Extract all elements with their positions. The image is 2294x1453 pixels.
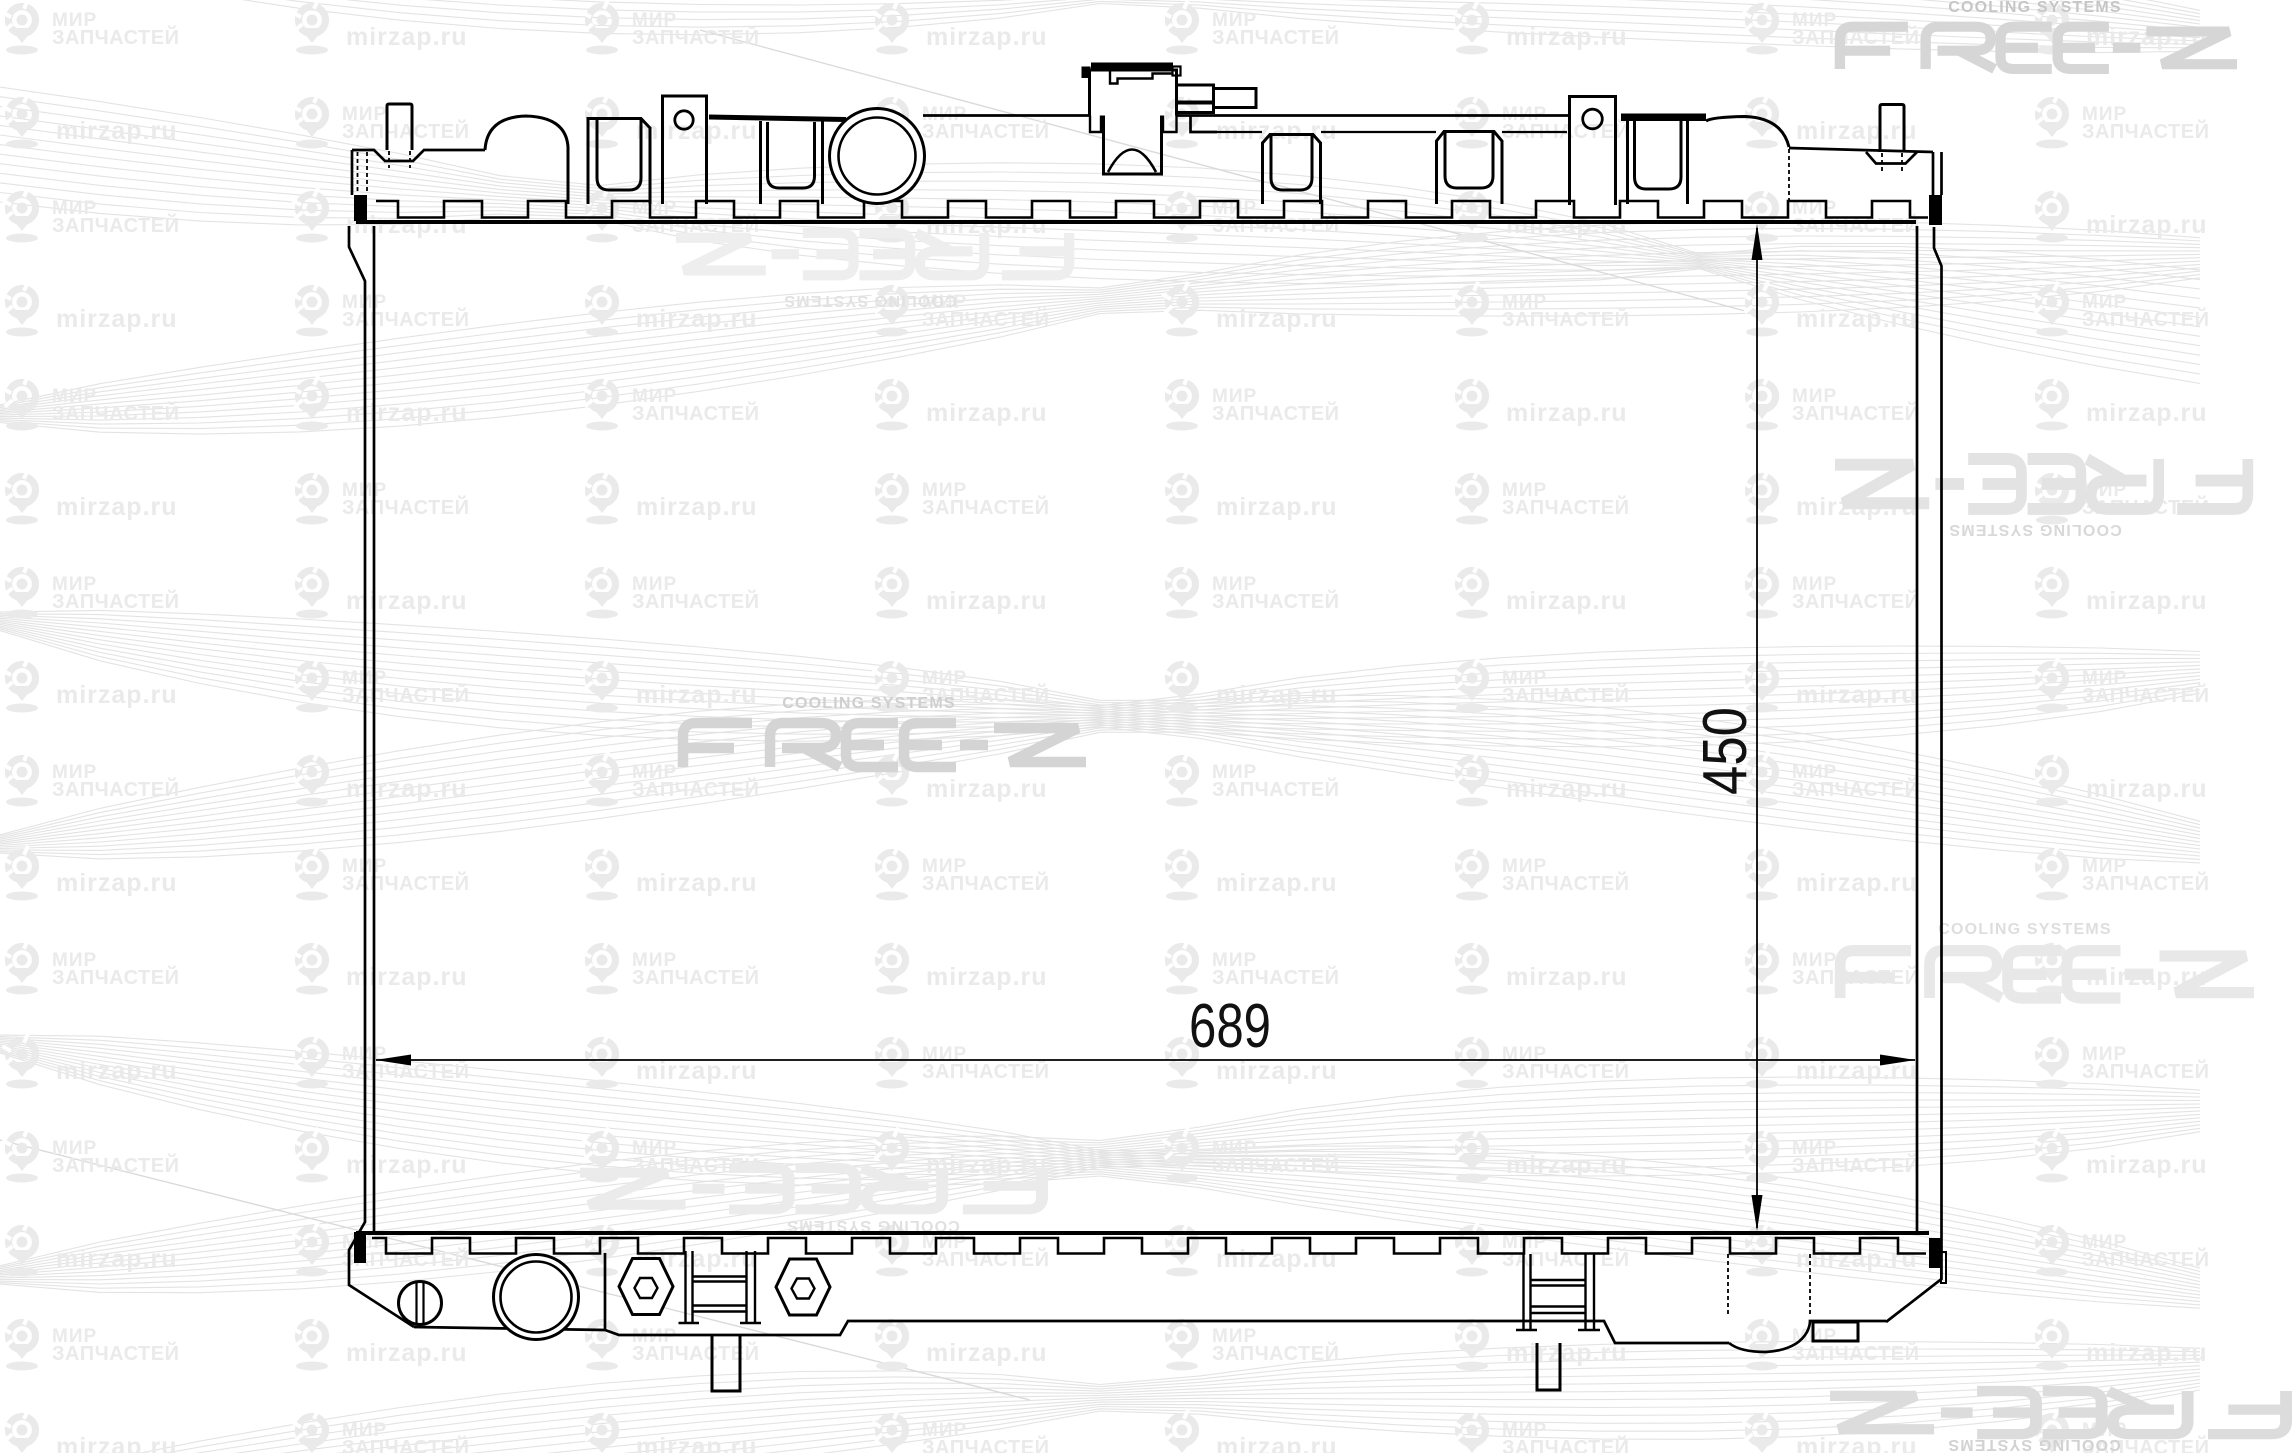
svg-text:450: 450 (1691, 707, 1760, 795)
svg-text:mirzap.ru: mirzap.ru (1506, 1339, 1628, 1367)
svg-text:ЗАПЧАСТЕЙ: ЗАПЧАСТЕЙ (52, 401, 179, 425)
svg-text:ЗАПЧАСТЕЙ: ЗАПЧАСТЕЙ (1212, 1153, 1339, 1177)
svg-text:ЗАПЧАСТЕЙ: ЗАПЧАСТЕЙ (342, 495, 469, 519)
svg-text:ЗАПЧАСТЕЙ: ЗАПЧАСТЕЙ (342, 871, 469, 895)
svg-text:mirzap.ru: mirzap.ru (926, 775, 1048, 803)
svg-text:ЗАПЧАСТЕЙ: ЗАПЧАСТЕЙ (52, 589, 179, 613)
svg-text:ЗАПЧАСТЕЙ: ЗАПЧАСТЕЙ (1502, 683, 1629, 707)
svg-text:mirzap.ru: mirzap.ru (56, 1245, 178, 1273)
svg-text:ЗАПЧАСТЕЙ: ЗАПЧАСТЕЙ (632, 401, 759, 425)
svg-text:ЗАПЧАСТЕЙ: ЗАПЧАСТЕЙ (342, 307, 469, 331)
svg-text:mirzap.ru: mirzap.ru (2086, 211, 2208, 239)
svg-text:mirzap.ru: mirzap.ru (636, 305, 758, 333)
svg-text:ЗАПЧАСТЕЙ: ЗАПЧАСТЕЙ (52, 965, 179, 989)
svg-text:mirzap.ru: mirzap.ru (926, 399, 1048, 427)
svg-text:ЗАПЧАСТЕЙ: ЗАПЧАСТЕЙ (2082, 1247, 2209, 1271)
svg-text:ЗАПЧАСТЕЙ: ЗАПЧАСТЕЙ (52, 25, 179, 49)
svg-text:mirzap.ru: mirzap.ru (926, 23, 1048, 51)
svg-text:mirzap.ru: mirzap.ru (1796, 117, 1918, 145)
svg-text:mirzap.ru: mirzap.ru (636, 681, 758, 709)
svg-text:mirzap.ru: mirzap.ru (56, 1433, 178, 1453)
svg-text:ЗАПЧАСТЕЙ: ЗАПЧАСТЕЙ (922, 1247, 1049, 1271)
svg-text:ЗАПЧАСТЕЙ: ЗАПЧАСТЕЙ (632, 777, 759, 801)
svg-text:ЗАПЧАСТЕЙ: ЗАПЧАСТЕЙ (922, 119, 1049, 143)
svg-text:mirzap.ru: mirzap.ru (2086, 1339, 2208, 1367)
svg-text:ЗАПЧАСТЕЙ: ЗАПЧАСТЕЙ (922, 307, 1049, 331)
svg-text:mirzap.ru: mirzap.ru (1796, 1433, 1918, 1453)
svg-text:ЗАПЧАСТЕЙ: ЗАПЧАСТЕЙ (632, 589, 759, 613)
svg-text:ЗАПЧАСТЕЙ: ЗАПЧАСТЕЙ (1502, 495, 1629, 519)
svg-text:ЗАПЧАСТЕЙ: ЗАПЧАСТЕЙ (1792, 1341, 1919, 1365)
svg-text:mirzap.ru: mirzap.ru (1506, 1151, 1628, 1179)
svg-text:ЗАПЧАСТЕЙ: ЗАПЧАСТЕЙ (1502, 1247, 1629, 1271)
svg-text:mirzap.ru: mirzap.ru (2086, 775, 2208, 803)
svg-text:ЗАПЧАСТЕЙ: ЗАПЧАСТЕЙ (922, 1435, 1049, 1453)
svg-text:ЗАПЧАСТЕЙ: ЗАПЧАСТЕЙ (632, 25, 759, 49)
svg-text:COOLING SYSTEMS: COOLING SYSTEMS (1948, 0, 2122, 16)
svg-text:ЗАПЧАСТЕЙ: ЗАПЧАСТЕЙ (1792, 401, 1919, 425)
svg-text:ЗАПЧАСТЕЙ: ЗАПЧАСТЕЙ (1502, 1059, 1629, 1083)
svg-text:ЗАПЧАСТЕЙ: ЗАПЧАСТЕЙ (922, 871, 1049, 895)
svg-text:mirzap.ru: mirzap.ru (1216, 1433, 1338, 1453)
svg-text:ЗАПЧАСТЕЙ: ЗАПЧАСТЕЙ (1502, 871, 1629, 895)
svg-text:mirzap.ru: mirzap.ru (926, 1339, 1048, 1367)
svg-text:ЗАПЧАСТЕЙ: ЗАПЧАСТЕЙ (2082, 1059, 2209, 1083)
svg-text:ЗАПЧАСТЕЙ: ЗАПЧАСТЕЙ (52, 213, 179, 237)
svg-text:mirzap.ru: mirzap.ru (1216, 305, 1338, 333)
svg-text:mirzap.ru: mirzap.ru (346, 1339, 468, 1367)
svg-text:ЗАПЧАСТЕЙ: ЗАПЧАСТЕЙ (2082, 119, 2209, 143)
svg-text:ЗАПЧАСТЕЙ: ЗАПЧАСТЕЙ (922, 495, 1049, 519)
svg-text:mirzap.ru: mirzap.ru (1216, 869, 1338, 897)
svg-text:ЗАПЧАСТЕЙ: ЗАПЧАСТЕЙ (632, 965, 759, 989)
svg-text:ЗАПЧАСТЕЙ: ЗАПЧАСТЕЙ (1212, 589, 1339, 613)
svg-text:ЗАПЧАСТЕЙ: ЗАПЧАСТЕЙ (342, 1435, 469, 1453)
svg-text:mirzap.ru: mirzap.ru (2086, 399, 2208, 427)
svg-text:COOLING SYSTEMS: COOLING SYSTEMS (783, 292, 957, 309)
svg-text:ЗАПЧАСТЕЙ: ЗАПЧАСТЕЙ (342, 119, 469, 143)
svg-text:mirzap.ru: mirzap.ru (2086, 587, 2208, 615)
svg-text:mirzap.ru: mirzap.ru (1796, 681, 1918, 709)
svg-text:ЗАПЧАСТЕЙ: ЗАПЧАСТЕЙ (1212, 777, 1339, 801)
svg-text:mirzap.ru: mirzap.ru (1796, 869, 1918, 897)
svg-text:ЗАПЧАСТЕЙ: ЗАПЧАСТЕЙ (2082, 871, 2209, 895)
svg-text:ЗАПЧАСТЕЙ: ЗАПЧАСТЕЙ (1792, 777, 1919, 801)
svg-text:mirzap.ru: mirzap.ru (926, 963, 1048, 991)
svg-text:ЗАПЧАСТЕЙ: ЗАПЧАСТЕЙ (1212, 25, 1339, 49)
svg-text:mirzap.ru: mirzap.ru (636, 869, 758, 897)
svg-text:mirzap.ru: mirzap.ru (56, 305, 178, 333)
svg-text:ЗАПЧАСТЕЙ: ЗАПЧАСТЕЙ (1212, 1341, 1339, 1365)
svg-text:mirzap.ru: mirzap.ru (1506, 399, 1628, 427)
svg-text:mirzap.ru: mirzap.ru (636, 493, 758, 521)
svg-text:ЗАПЧАСТЕЙ: ЗАПЧАСТЕЙ (1212, 965, 1339, 989)
svg-text:mirzap.ru: mirzap.ru (1216, 1057, 1338, 1085)
svg-text:ЗАПЧАСТЕЙ: ЗАПЧАСТЕЙ (342, 683, 469, 707)
svg-text:ЗАПЧАСТЕЙ: ЗАПЧАСТЕЙ (922, 1059, 1049, 1083)
svg-text:mirzap.ru: mirzap.ru (636, 1433, 758, 1453)
svg-text:ЗАПЧАСТЕЙ: ЗАПЧАСТЕЙ (1792, 589, 1919, 613)
svg-text:mirzap.ru: mirzap.ru (346, 23, 468, 51)
svg-text:mirzap.ru: mirzap.ru (1796, 305, 1918, 333)
svg-text:COOLING SYSTEMS: COOLING SYSTEMS (782, 695, 956, 712)
svg-text:mirzap.ru: mirzap.ru (1216, 1245, 1338, 1273)
svg-text:ЗАПЧАСТЕЙ: ЗАПЧАСТЕЙ (52, 1341, 179, 1365)
svg-text:mirzap.ru: mirzap.ru (926, 587, 1048, 615)
svg-text:mirzap.ru: mirzap.ru (2086, 1151, 2208, 1179)
svg-text:ЗАПЧАСТЕЙ: ЗАПЧАСТЕЙ (1792, 1153, 1919, 1177)
svg-text:COOLING SYSTEMS: COOLING SYSTEMS (1947, 1436, 2121, 1453)
svg-text:mirzap.ru: mirzap.ru (1506, 211, 1628, 239)
svg-text:mirzap.ru: mirzap.ru (56, 1057, 178, 1085)
svg-text:mirzap.ru: mirzap.ru (56, 681, 178, 709)
svg-text:ЗАПЧАСТЕЙ: ЗАПЧАСТЕЙ (1502, 307, 1629, 331)
svg-text:ЗАПЧАСТЕЙ: ЗАПЧАСТЕЙ (1212, 401, 1339, 425)
svg-text:mirzap.ru: mirzap.ru (636, 117, 758, 145)
svg-text:ЗАПЧАСТЕЙ: ЗАПЧАСТЕЙ (2082, 307, 2209, 331)
svg-text:mirzap.ru: mirzap.ru (1506, 963, 1628, 991)
svg-text:mirzap.ru: mirzap.ru (1506, 23, 1628, 51)
svg-text:mirzap.ru: mirzap.ru (1506, 587, 1628, 615)
svg-text:mirzap.ru: mirzap.ru (636, 1057, 758, 1085)
svg-text:ЗАПЧАСТЕЙ: ЗАПЧАСТЕЙ (52, 1153, 179, 1177)
svg-text:COOLING SYSTEMS: COOLING SYSTEMS (1938, 921, 2112, 938)
svg-text:mirzap.ru: mirzap.ru (56, 117, 178, 145)
svg-text:mirzap.ru: mirzap.ru (56, 869, 178, 897)
svg-text:mirzap.ru: mirzap.ru (1506, 775, 1628, 803)
svg-text:ЗАПЧАСТЕЙ: ЗАПЧАСТЕЙ (2082, 683, 2209, 707)
svg-text:689: 689 (1189, 992, 1271, 1061)
svg-text:ЗАПЧАСТЕЙ: ЗАПЧАСТЕЙ (1502, 1435, 1629, 1453)
svg-text:mirzap.ru: mirzap.ru (56, 493, 178, 521)
svg-text:mirzap.ru: mirzap.ru (1216, 681, 1338, 709)
svg-text:mirzap.ru: mirzap.ru (1216, 493, 1338, 521)
svg-text:ЗАПЧАСТЕЙ: ЗАПЧАСТЕЙ (52, 777, 179, 801)
svg-text:COOLING SYSTEMS: COOLING SYSTEMS (1948, 521, 2122, 538)
